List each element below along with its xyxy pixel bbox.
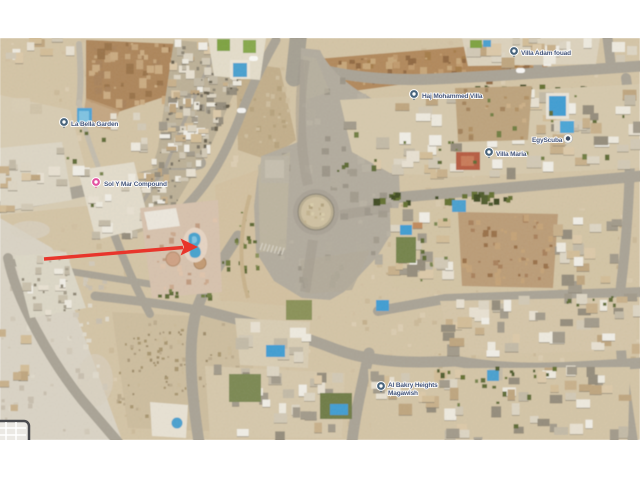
svg-text:La Bella Garden: La Bella Garden <box>71 121 118 128</box>
svg-text:Magawish: Magawish <box>388 390 418 397</box>
svg-text:Villa Adam fouad: Villa Adam fouad <box>521 50 571 57</box>
svg-text:Al Bakry Heights: Al Bakry Heights <box>388 382 438 389</box>
svg-text:Haj Mohammed Villa: Haj Mohammed Villa <box>422 93 483 100</box>
svg-text:EgyScuba: EgyScuba <box>532 137 563 144</box>
svg-text:Villa Maria: Villa Maria <box>496 151 527 158</box>
svg-text:Sol Y Mar Compound: Sol Y Mar Compound <box>104 181 167 188</box>
